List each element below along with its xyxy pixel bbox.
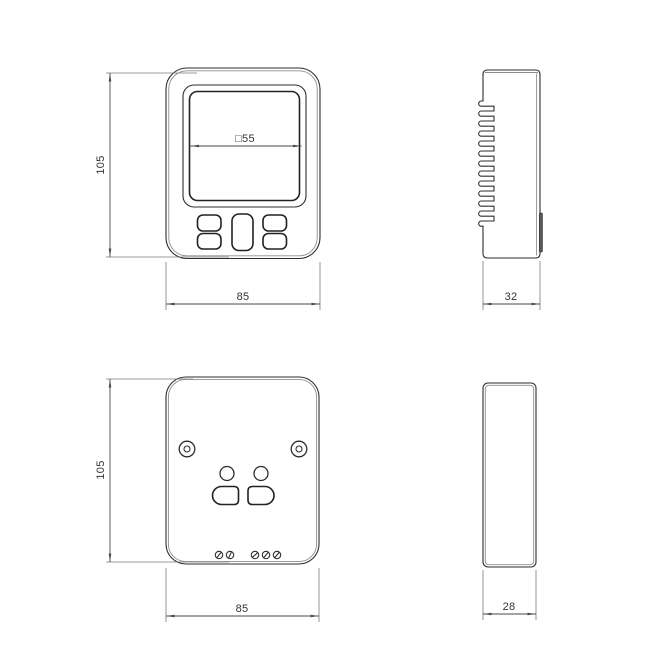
arrowhead-left: [483, 303, 492, 306]
backplate-inner-outline: [485, 385, 533, 564]
button-right-bottom: [263, 234, 287, 250]
front-height-label: 105: [95, 155, 107, 174]
screw-boss-left-inner: [184, 446, 190, 452]
backplate-depth-label: 28: [503, 601, 516, 613]
side-depth-label: 32: [505, 291, 518, 303]
arrowhead-left: [166, 303, 175, 306]
screw-boss-right-outer: [291, 441, 307, 457]
mounting-slot-right: [248, 487, 274, 505]
screw-slot: [229, 552, 232, 558]
back-sensor-holes: [220, 467, 268, 481]
right-side-view: [479, 70, 543, 258]
screen-size-label: □55: [235, 133, 255, 145]
arrowhead-right: [532, 303, 541, 306]
screw-slot: [275, 552, 280, 558]
technical-drawing-svg: □55 105 85 32: [0, 0, 650, 650]
side-body-outline-with-vent-fins: [479, 70, 540, 258]
back-view: [166, 377, 319, 564]
back-side-view: [483, 383, 536, 567]
arrowhead-left: [166, 615, 175, 618]
backplate-depth-dimension: 28: [483, 570, 536, 620]
side-depth-dimension: 32: [483, 261, 540, 310]
back-terminal-screws: [215, 551, 280, 558]
screw-slot: [264, 552, 268, 557]
front-width-dimension: 85: [166, 262, 320, 310]
arrowhead-up: [109, 73, 112, 82]
mounting-slot-left: [213, 487, 239, 505]
screw-boss-right-inner: [296, 446, 302, 452]
arrowhead-left: [191, 145, 200, 148]
back-height-label: 105: [95, 460, 107, 479]
back-body-outline: [166, 377, 319, 564]
arrowhead-right: [311, 615, 320, 618]
hole-left: [220, 467, 234, 481]
front-height-dimension: 105: [95, 73, 229, 257]
arrowhead-right: [312, 303, 321, 306]
button-left-bottom: [198, 234, 222, 250]
backplate-outline: [483, 383, 536, 567]
screw-slot: [217, 552, 221, 558]
button-left-top: [198, 215, 222, 231]
arrowhead-down: [109, 554, 112, 563]
front-view: □55: [166, 68, 320, 259]
drawing-sheet: □55 105 85 32: [0, 0, 650, 650]
front-body-inner-outline: [169, 71, 317, 256]
back-body-inner-outline: [168, 379, 316, 561]
screw-slot: [252, 553, 257, 558]
back-width-label: 85: [236, 603, 249, 615]
screen-width-dimension: □55: [191, 133, 302, 147]
front-buttons: [198, 214, 287, 251]
screw-boss-left-outer: [179, 441, 195, 457]
arrowhead-left: [483, 613, 492, 616]
hole-right: [254, 467, 268, 481]
side-clip: [539, 213, 542, 252]
button-right-top: [263, 215, 287, 231]
back-width-dimension: 85: [166, 568, 319, 622]
back-mounting-slots: [213, 487, 275, 505]
arrowhead-down: [109, 249, 112, 258]
back-screw-bosses: [179, 441, 307, 457]
back-height-dimension: 105: [95, 379, 229, 562]
front-width-label: 85: [237, 291, 250, 303]
button-center: [232, 214, 253, 251]
arrowhead-right: [528, 613, 537, 616]
arrowhead-up: [109, 379, 112, 388]
